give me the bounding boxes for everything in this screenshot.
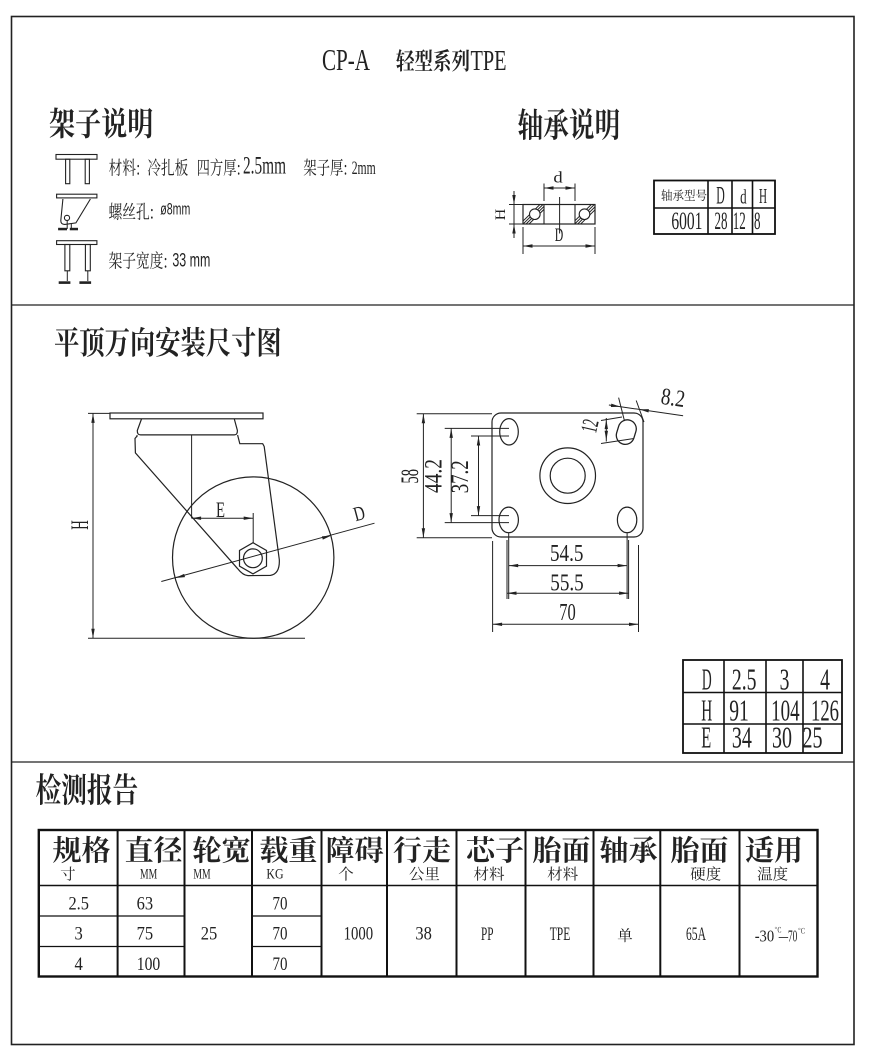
svg-text:MM: MM (140, 867, 157, 883)
svg-text:54.5: 54.5 (550, 541, 584, 567)
svg-text:55.5: 55.5 (550, 571, 584, 597)
svg-text:TPE: TPE (471, 46, 507, 77)
svg-text:2.5: 2.5 (732, 662, 757, 697)
svg-text:MM: MM (193, 867, 210, 883)
svg-text:1000: 1000 (344, 924, 374, 945)
svg-text:H: H (493, 209, 509, 221)
svg-text:D: D (716, 183, 725, 210)
svg-text:2.5: 2.5 (68, 894, 89, 915)
svg-text:70: 70 (273, 954, 288, 975)
svg-text:2.5mm: 2.5mm (243, 153, 286, 180)
svg-text:33 mm: 33 mm (172, 251, 210, 272)
svg-text:6001: 6001 (671, 208, 702, 235)
svg-text:70: 70 (273, 924, 288, 945)
svg-text:34: 34 (732, 720, 752, 755)
svg-text:—70: —70 (778, 927, 797, 946)
svg-text:H: H (67, 520, 94, 530)
svg-text:D: D (702, 662, 712, 697)
svg-text:ø8mm: ø8mm (160, 200, 190, 219)
svg-text:38: 38 (415, 924, 432, 945)
svg-text:3: 3 (75, 924, 83, 945)
svg-text:8.2: 8.2 (659, 384, 686, 413)
svg-text:KG: KG (266, 867, 283, 883)
svg-text:63: 63 (137, 894, 154, 915)
svg-text:100: 100 (137, 954, 161, 975)
svg-text:37.2: 37.2 (447, 460, 474, 493)
svg-text:3: 3 (780, 662, 790, 697)
svg-text:E: E (701, 720, 711, 755)
svg-text:28: 28 (715, 208, 728, 235)
svg-text:CP-A: CP-A (322, 42, 370, 77)
svg-text:d: d (553, 169, 562, 186)
svg-text:E: E (216, 497, 225, 522)
svg-text:4: 4 (75, 954, 84, 975)
svg-text:25: 25 (201, 924, 218, 945)
svg-text:70: 70 (559, 600, 576, 626)
svg-text:12: 12 (733, 208, 746, 235)
svg-text:d: d (740, 187, 747, 209)
svg-text:75: 75 (137, 924, 154, 945)
svg-text:H: H (759, 184, 767, 208)
svg-text:4: 4 (820, 662, 830, 697)
svg-text:44.2: 44.2 (421, 459, 448, 493)
svg-text:TPE: TPE (550, 924, 571, 945)
svg-text:-30: -30 (755, 927, 775, 946)
svg-text:70: 70 (273, 894, 288, 915)
svg-text:2mm: 2mm (352, 158, 376, 179)
svg-text:65A: 65A (686, 924, 706, 945)
svg-text:D: D (555, 225, 564, 246)
svg-text:8: 8 (754, 208, 761, 235)
svg-text:30: 30 (772, 720, 792, 755)
svg-text:25: 25 (803, 720, 823, 755)
svg-text:PP: PP (481, 924, 494, 945)
